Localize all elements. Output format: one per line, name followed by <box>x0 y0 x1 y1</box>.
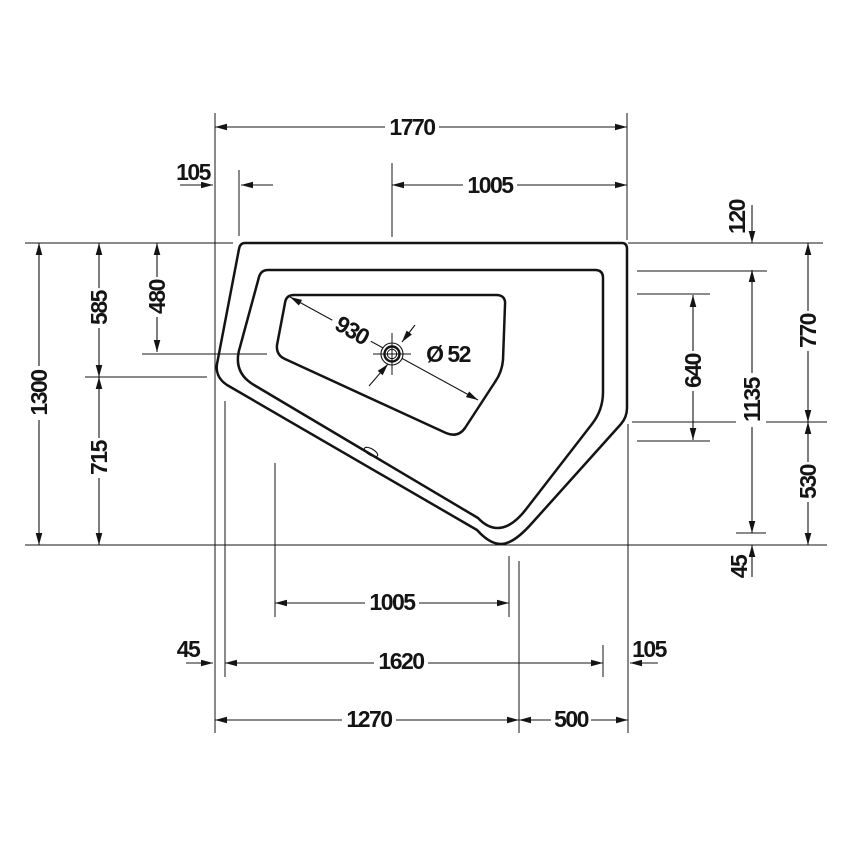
dim-label-top-total: 1770 <box>385 114 439 140</box>
tub-outer-edge <box>217 243 627 544</box>
dim-label-bottom-mid: 1620 <box>374 648 428 674</box>
dim-value: 1770 <box>389 114 435 140</box>
dim-value: 1300 <box>26 370 52 416</box>
dim-label-right-upper: 770 <box>795 311 821 351</box>
dim-value: 480 <box>144 279 170 314</box>
dim-value: 105 <box>632 636 668 662</box>
dim-value: 500 <box>554 706 589 732</box>
dim-label-top-right: 1005 <box>463 172 517 198</box>
dim-value: 770 <box>795 313 821 348</box>
bathtub-outline <box>217 243 627 544</box>
dim-value: 1005 <box>369 589 416 615</box>
dim-label-left-lower: 715 <box>86 438 112 478</box>
dim-value: 715 <box>86 439 112 475</box>
overflow-hole <box>363 445 379 458</box>
dim-value: 120 <box>724 199 750 234</box>
dim-label-basin-diagonal: 930 <box>326 308 377 353</box>
technical-drawing-canvas: 1770 105 1005 120 770 1135 640 530 <box>0 0 850 850</box>
dim-label-top-left: 105 <box>173 159 213 185</box>
dim-label-basin-right: 640 <box>680 351 706 391</box>
bathtub-dimension-drawing: 1770 105 1005 120 770 1135 640 530 <box>0 0 850 850</box>
drain-diameter-leader-upper <box>402 325 415 342</box>
dim-label-left-upper: 585 <box>86 288 112 328</box>
dim-label-bottom-span: 1005 <box>365 589 419 615</box>
dim-label-drain-diameter: Ø 52 <box>422 341 474 367</box>
dim-label-rim-top-right: 120 <box>724 197 750 237</box>
dim-label-bottom-right: 105 <box>629 636 669 662</box>
dim-value: 1135 <box>739 376 765 422</box>
dim-value: 45 <box>726 554 752 578</box>
dim-value: 1005 <box>467 172 514 198</box>
dim-label-left-total: 1300 <box>26 366 52 420</box>
dim-label-right-mid: 1135 <box>739 373 765 427</box>
dim-value: Ø 52 <box>426 341 471 367</box>
tub-inner-rim <box>238 270 603 528</box>
dim-label-right-lower: 530 <box>795 462 821 502</box>
dim-value: 1620 <box>378 648 424 674</box>
dim-value: 45 <box>177 636 201 662</box>
dim-label-bottom-total-left: 1270 <box>342 706 396 732</box>
dim-label-bottom-left: 45 <box>173 636 203 662</box>
dim-label-right-bottom: 45 <box>726 552 752 582</box>
dim-value: 585 <box>86 289 112 325</box>
dim-value: 640 <box>680 353 706 388</box>
drain <box>369 325 415 386</box>
dim-value: 1270 <box>346 706 392 732</box>
dim-label-drain-from-top: 480 <box>144 277 170 317</box>
dim-value: 105 <box>176 159 212 185</box>
drain-diameter-leader-lower <box>369 364 388 386</box>
dim-value: 530 <box>795 464 821 499</box>
dim-label-bottom-total-right: 500 <box>551 706 591 732</box>
